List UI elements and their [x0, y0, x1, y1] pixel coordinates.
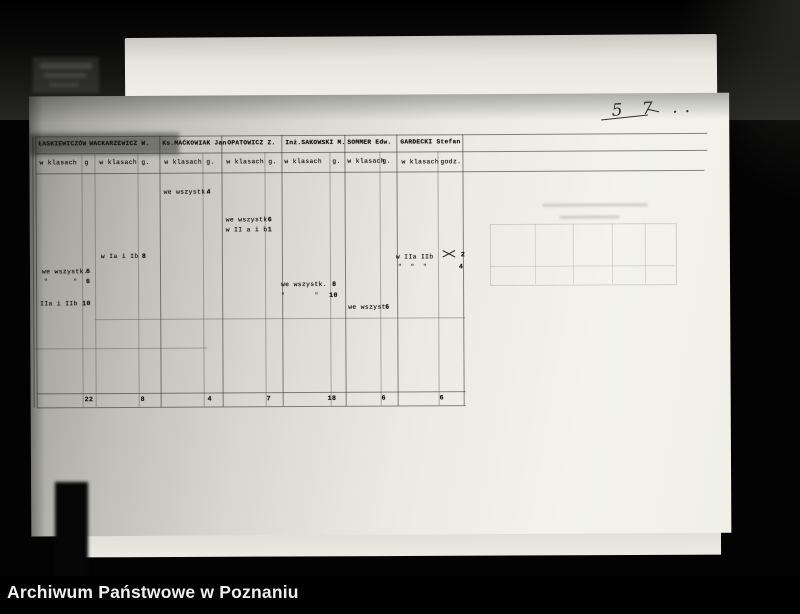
bleed-through-table: [490, 223, 677, 286]
col-header-classes: w klasach: [284, 158, 322, 165]
entry-classes: " ": [281, 292, 319, 299]
table-rule: [35, 170, 704, 175]
entry-classes: we wszyst.: [348, 304, 390, 311]
entry-classes: we wszystk.: [42, 268, 88, 275]
teacher-name: OPATOWICZ Z.: [227, 139, 275, 146]
table-rule: [437, 151, 439, 405]
table-rule: [37, 405, 466, 408]
teacher-name: Ks.MAĆKOWIAK Jan: [162, 139, 226, 146]
stamp-line-1: [40, 63, 92, 69]
entry-classes: " ": [44, 278, 77, 285]
teacher-name: Inż.SAKOWSKI M.: [285, 139, 345, 146]
table-rule: [32, 136, 34, 407]
entry-classes: we wszystk.: [226, 216, 272, 223]
entry-hours: 6: [268, 216, 272, 223]
document-page: ŁASKIEWICZÓW WACKARZEWICZ W. Ks.MAĆKOWIA…: [29, 93, 731, 537]
entry-hours: 4: [459, 263, 463, 270]
table-rule: [95, 317, 465, 320]
total-hours: 6: [440, 394, 444, 401]
col-header-hours: g: [84, 159, 88, 166]
teacher-name: WACKARZEWICZ W.: [89, 140, 149, 147]
entry-hours: 10: [329, 292, 338, 299]
archive-caption: Archiwum Państwowe w Poznaniu: [7, 582, 299, 603]
total-hours: 6: [382, 395, 386, 402]
entry-hours: 6: [86, 278, 90, 285]
total-hours: 8: [141, 396, 145, 403]
stamp-line-2: [44, 73, 86, 78]
entry-classes: " " ": [398, 263, 427, 270]
entry-hours: 10: [82, 300, 91, 307]
bleed-through-text-smudge: [543, 203, 648, 207]
entry-hours: 8: [142, 253, 146, 260]
entry-hours: 6: [86, 268, 90, 275]
col-header-hours: g.: [206, 158, 214, 165]
col-header-classes: w klasach: [99, 159, 137, 166]
entry-hours: 6: [385, 304, 389, 311]
entry-classes: w IIa IIb: [396, 253, 434, 260]
table-rule: [221, 135, 223, 406]
entry-classes: w II a i b: [226, 226, 268, 233]
teacher-name: GARDECKI Stefan: [400, 138, 460, 145]
col-header-classes: w klasach: [164, 159, 202, 166]
table-rule: [137, 153, 139, 407]
page-corner-shadow: [55, 482, 88, 582]
stamp-line-3: [49, 83, 79, 87]
col-header-classes: w klasach: [401, 158, 439, 165]
entry-hours: 8: [332, 281, 336, 288]
teacher-name: ŁASKIEWICZÓW: [38, 140, 86, 147]
entry-hours: 1: [268, 226, 272, 233]
col-header-classes: w klasach: [39, 159, 77, 166]
col-header-hours: g.: [332, 158, 340, 165]
crossed-out-mark: [442, 248, 455, 259]
caption-bar: Archiwum Państwowe w Poznaniu: [0, 576, 800, 614]
table-rule: [159, 136, 161, 407]
table-rule: [33, 348, 207, 350]
col-header-hours: g.: [268, 158, 276, 165]
archive-photo-scan: Dok. ŁASKIEWICZÓW WACKARZEWICZ W. Ks.M: [0, 0, 800, 614]
table-rule: [94, 153, 96, 407]
total-hours: 4: [208, 396, 212, 403]
entry-classes: w Ia i Ib: [101, 253, 139, 260]
total-hours: 7: [267, 395, 271, 402]
col-header-hours: godz.: [440, 158, 461, 165]
entry-classes: IIa i IIb: [40, 300, 78, 307]
entry-hours: 2: [461, 251, 465, 258]
col-header-classes: w klasach: [226, 158, 264, 165]
table-rule: [344, 135, 346, 406]
teacher-name: SOMMER Edw.: [347, 139, 391, 146]
entry-classes: we wszystk.: [281, 281, 327, 288]
total-hours: 22: [85, 396, 94, 403]
entry-hours: 4: [207, 189, 211, 196]
table-rule: [281, 135, 283, 406]
col-header-hours: g.: [382, 158, 390, 165]
table-rule: [379, 152, 381, 406]
total-hours: 18: [328, 395, 337, 402]
entry-classes: we wszystk.: [164, 189, 210, 196]
table-rule: [35, 136, 37, 407]
col-header-classes: w klasach: [347, 158, 385, 165]
table-rule: [81, 153, 83, 407]
handwritten-page-number: 5 7 ..: [611, 95, 723, 133]
bleed-through-text-smudge: [560, 215, 620, 218]
table-rule: [264, 152, 266, 406]
corner-label: Dok.: [111, 64, 125, 71]
table-rule: [329, 152, 331, 406]
table-rule: [37, 391, 466, 394]
col-header-hours: g.: [141, 159, 149, 166]
